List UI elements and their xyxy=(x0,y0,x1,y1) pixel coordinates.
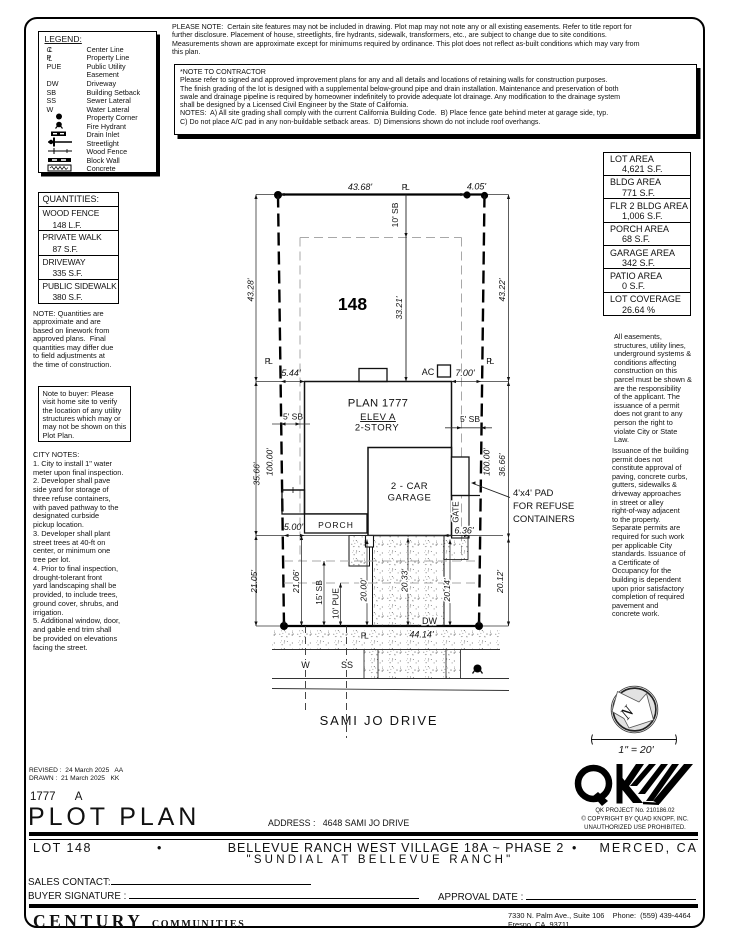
svg-text:2-STORY: 2-STORY xyxy=(355,423,399,434)
svg-text:20.12': 20.12' xyxy=(495,570,505,594)
svg-text:DW: DW xyxy=(422,616,437,626)
svg-text:PL: PL xyxy=(486,356,494,366)
svg-text:1" = 20': 1" = 20' xyxy=(618,744,654,756)
svg-text:CONTAINERS: CONTAINERS xyxy=(513,514,575,525)
svg-text:10' PUE: 10' PUE xyxy=(331,588,341,619)
svg-text:W: W xyxy=(301,660,310,670)
svg-text:SAMI JO DRIVE: SAMI JO DRIVE xyxy=(320,713,439,728)
svg-text:15' SB: 15' SB xyxy=(314,580,324,605)
svg-text:GARAGE: GARAGE xyxy=(388,493,432,504)
svg-text:100.00': 100.00' xyxy=(482,448,492,476)
svg-text:ELEV A: ELEV A xyxy=(360,412,396,423)
svg-text:5' SB: 5' SB xyxy=(283,412,303,422)
svg-text:GATE: GATE xyxy=(452,501,461,522)
svg-text:10' SB: 10' SB xyxy=(390,202,400,227)
svg-text:QK PROJECT No. 210186.02: QK PROJECT No. 210186.02 xyxy=(595,808,675,814)
svg-text:35.66': 35.66' xyxy=(252,462,262,485)
svg-text:PL: PL xyxy=(265,356,273,366)
svg-text:148: 148 xyxy=(338,294,367,314)
svg-text:21.06': 21.06' xyxy=(291,570,301,594)
svg-text:PL: PL xyxy=(402,182,410,192)
svg-text:6.36': 6.36' xyxy=(454,526,474,536)
svg-text:4.05': 4.05' xyxy=(467,182,487,192)
svg-text:AC: AC xyxy=(422,367,435,377)
svg-text:7.00': 7.00' xyxy=(455,368,475,378)
svg-text:44.14': 44.14' xyxy=(409,630,434,640)
svg-text:UNAUTHORIZED USE PROHIBITED.: UNAUTHORIZED USE PROHIBITED. xyxy=(584,825,686,831)
svg-text:FOR REFUSE: FOR REFUSE xyxy=(513,501,574,512)
svg-text:5' SB: 5' SB xyxy=(460,414,480,424)
svg-text:4'x4' PAD: 4'x4' PAD xyxy=(513,488,554,499)
svg-text:20.33': 20.33' xyxy=(400,569,410,593)
svg-text:33.21': 33.21' xyxy=(394,296,404,319)
svg-text:21.05': 21.05' xyxy=(249,570,259,594)
svg-text:5.00': 5.00' xyxy=(284,522,304,532)
svg-text:SS: SS xyxy=(341,660,353,670)
svg-text:43.68': 43.68' xyxy=(348,182,373,192)
svg-text:36.66': 36.66' xyxy=(497,453,507,476)
svg-text:20.00': 20.00' xyxy=(359,578,369,602)
svg-text:PORCH: PORCH xyxy=(318,520,354,530)
svg-text:43.28': 43.28' xyxy=(246,278,256,301)
svg-text:43.22': 43.22' xyxy=(497,278,507,301)
svg-text:20.14': 20.14' xyxy=(442,578,452,602)
svg-text:© COPYRIGHT BY QUAD KNOPF, INC: © COPYRIGHT BY QUAD KNOPF, INC. xyxy=(581,816,689,823)
svg-text:2 - CAR: 2 - CAR xyxy=(391,481,428,492)
svg-text:5.44': 5.44' xyxy=(281,368,301,378)
svg-text:100.00': 100.00' xyxy=(265,448,275,476)
svg-text:PLAN 1777: PLAN 1777 xyxy=(348,398,408,410)
